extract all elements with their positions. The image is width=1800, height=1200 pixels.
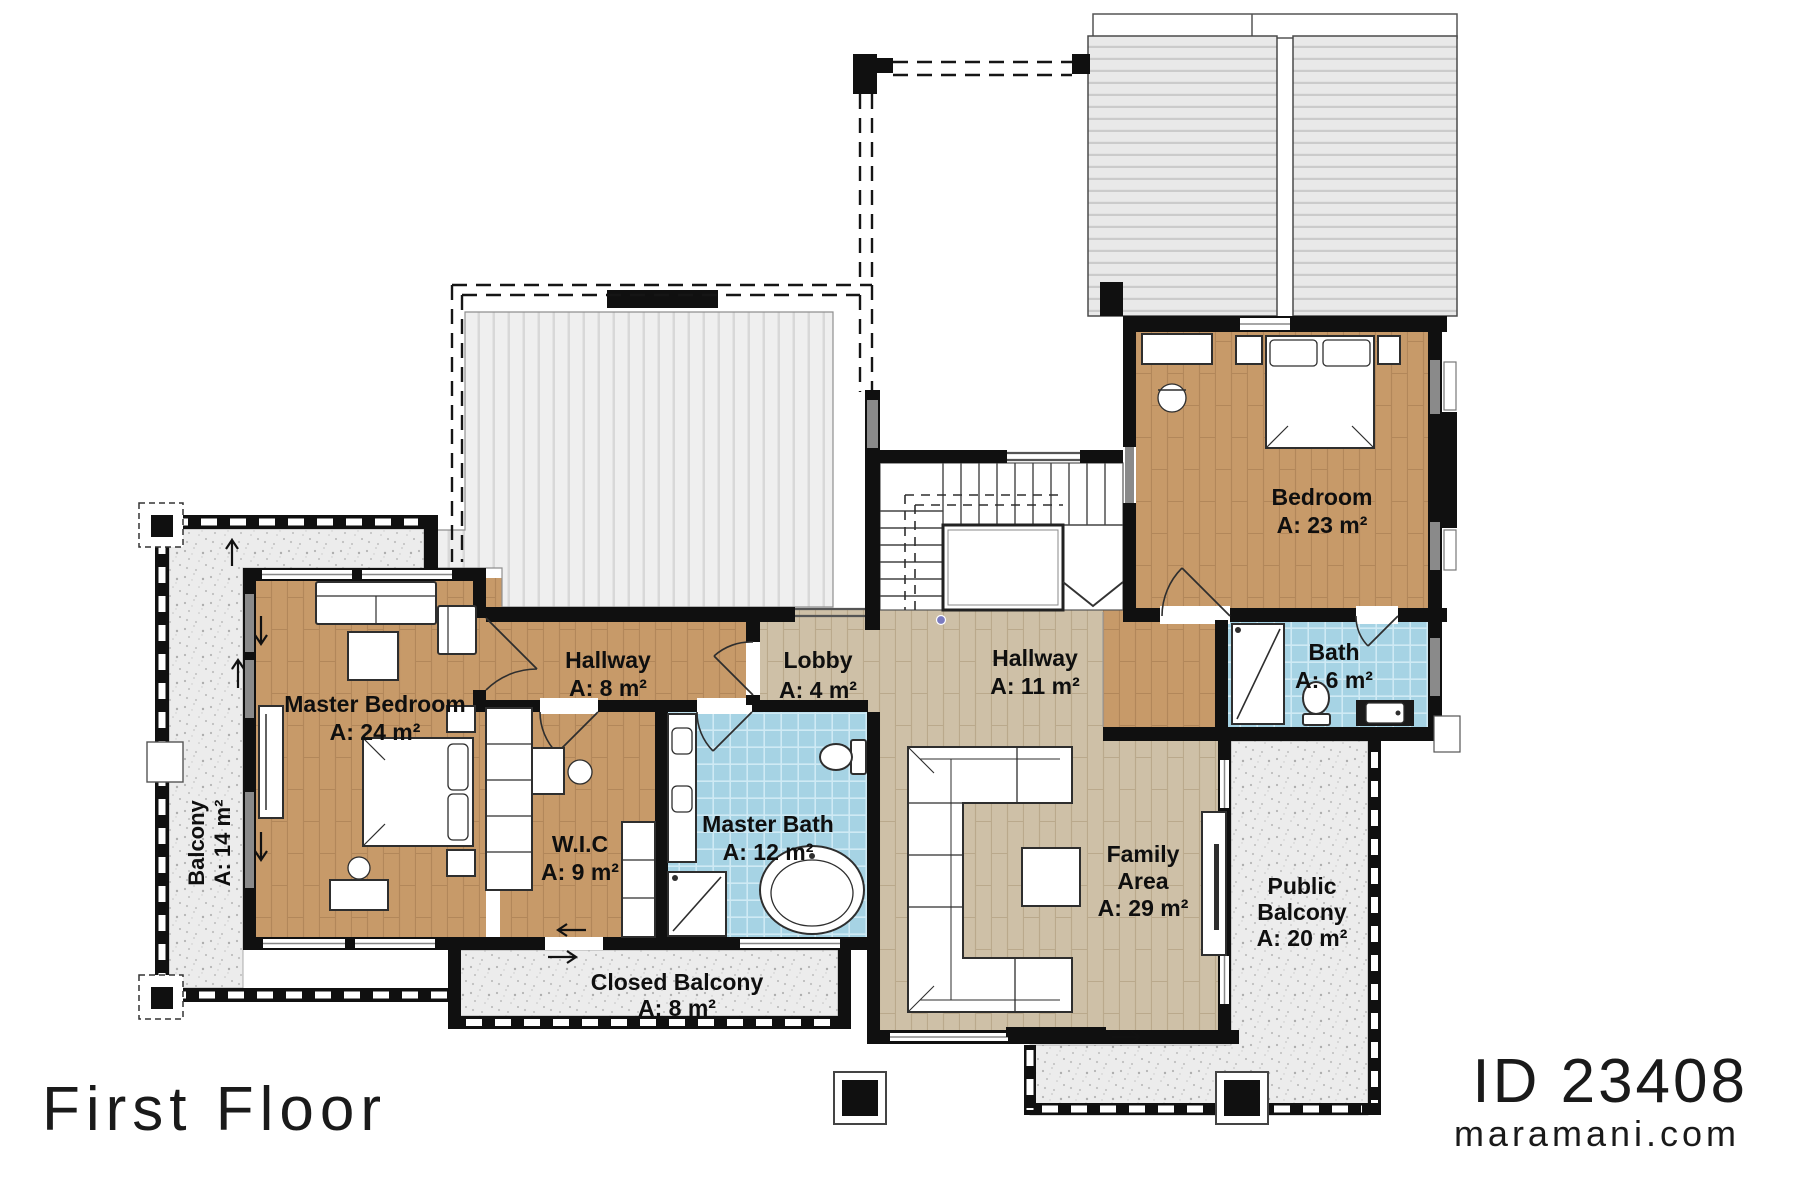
plan-id: ID 23408 xyxy=(1472,1047,1748,1116)
room-area-lobby: A: 4 m² xyxy=(779,677,857,703)
room-area-family: A: 29 m² xyxy=(1098,895,1189,921)
room-label-closed-balcony: Closed Balcony xyxy=(591,969,764,995)
roof-ridge-cap xyxy=(1093,14,1457,38)
room-label-hallway-main: Hallway xyxy=(992,645,1078,671)
website: maramani.com xyxy=(1454,1113,1740,1154)
shower-master-bath-icon xyxy=(668,872,726,936)
room-area-wic: A: 9 m² xyxy=(541,859,619,885)
roof-center xyxy=(430,290,833,607)
roof-top-right xyxy=(1088,14,1457,316)
room-label-lobby: Lobby xyxy=(784,647,853,673)
room-label-wic: W.I.C xyxy=(552,831,608,857)
roof-panel-left xyxy=(1088,36,1277,316)
room-label-hallway-west: Hallway xyxy=(565,647,651,673)
corner-marker-top xyxy=(139,503,183,547)
room-area-balcony-west: A: 14 m² xyxy=(210,800,235,887)
staircase xyxy=(795,453,1123,625)
room-area-master-bath: A: 12 m² xyxy=(723,839,814,865)
vanity-bath-icon xyxy=(1356,700,1414,726)
room-area-hallway-west: A: 8 m² xyxy=(569,675,647,701)
roof-panel-right xyxy=(1293,36,1457,316)
room-area-bath: A: 6 m² xyxy=(1295,667,1373,693)
room-label-master-bath: Master Bath xyxy=(702,811,834,837)
floor-plan-svg: Master Bedroom A: 24 m² Hallway A: 8 m² … xyxy=(0,0,1800,1200)
column-freestanding xyxy=(834,1072,886,1124)
room-floor-vestibule xyxy=(1103,608,1215,727)
room-label-family-line2: Area xyxy=(1117,868,1168,894)
floor-plan-canvas: Master Bedroom A: 24 m² Hallway A: 8 m² … xyxy=(0,0,1800,1200)
stair-newel-dot xyxy=(937,616,946,625)
room-label-public-balcony-line2: Balcony xyxy=(1257,899,1347,925)
column-public-balcony xyxy=(1216,1072,1268,1124)
tv-console-icon xyxy=(1202,812,1226,955)
room-area-hallway-main: A: 11 m² xyxy=(990,673,1080,699)
room-area-closed-balcony: A: 8 m² xyxy=(638,995,716,1021)
window-sill-west xyxy=(147,742,183,782)
room-area-public-balcony: A: 20 m² xyxy=(1257,925,1348,951)
room-area-bedroom: A: 23 m² xyxy=(1277,512,1368,538)
shower-bath-icon xyxy=(1232,624,1284,724)
page-title: First Floor xyxy=(42,1075,387,1144)
room-label-public-balcony-line1: Public xyxy=(1267,873,1336,899)
room-label-balcony-west: Balcony xyxy=(184,799,209,885)
room-area-master-bedroom: A: 24 m² xyxy=(330,719,421,745)
corner-marker-bottom xyxy=(139,975,183,1019)
room-label-family-line1: Family xyxy=(1107,841,1180,867)
room-label-bedroom: Bedroom xyxy=(1272,484,1373,510)
room-label-master-bedroom: Master Bedroom xyxy=(284,691,465,717)
room-label-bath: Bath xyxy=(1308,639,1359,665)
